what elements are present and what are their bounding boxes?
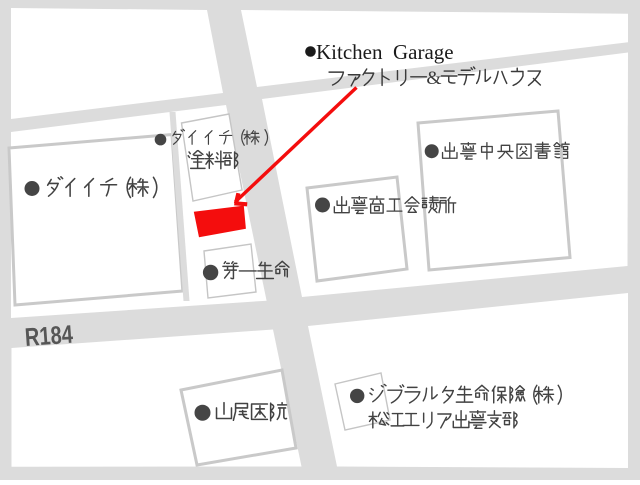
svg-text:R184: R184 xyxy=(24,321,74,352)
svg-text:Kitchen Garage: Kitchen Garage xyxy=(316,40,454,64)
svg-text:&: & xyxy=(426,68,441,89)
